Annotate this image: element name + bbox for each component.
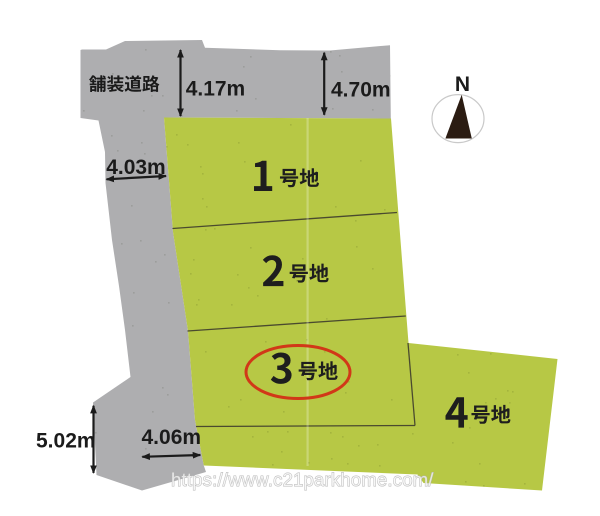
svg-text:5.02m: 5.02m (36, 429, 96, 452)
svg-text:4.70m: 4.70m (331, 79, 391, 102)
svg-text:4.06m: 4.06m (142, 426, 202, 449)
svg-text:4.03m: 4.03m (106, 156, 166, 179)
svg-text:https://www.c21parkhome.com/: https://www.c21parkhome.com/ (171, 469, 434, 490)
svg-text:N: N (455, 73, 470, 96)
svg-text:4.17m: 4.17m (186, 78, 246, 101)
